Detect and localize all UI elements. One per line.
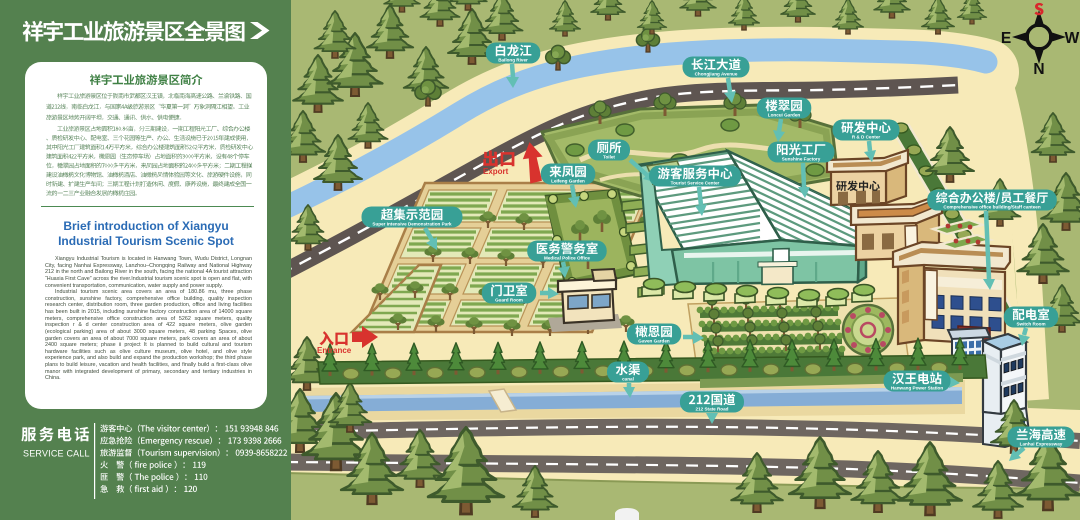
svg-text:canal: canal [622, 376, 634, 381]
svg-text:Lanhai Expressway: Lanhai Expressway [1020, 441, 1063, 446]
svg-text:Medical Police Office: Medical Police Office [544, 255, 590, 260]
svg-text:Guard Room: Guard Room [495, 297, 523, 302]
svg-text:R & D Center: R & D Center [852, 134, 881, 139]
svg-text:Hanwang Power Station: Hanwang Power Station [891, 385, 944, 390]
svg-text:Tourist Service Center: Tourist Service Center [671, 180, 720, 185]
svg-text:E: E [1001, 30, 1011, 47]
svg-text:N: N [1033, 61, 1044, 78]
svg-text:Switch Room: Switch Room [1016, 321, 1045, 326]
svg-text:Comprehensive office building/: Comprehensive office building/Staff cant… [943, 204, 1040, 209]
svg-text:Bailong River: Bailong River [498, 57, 528, 62]
svg-text:Entrance: Entrance [317, 346, 352, 355]
svg-text:Super Intensive Demonstration: Super Intensive Demonstration Park [372, 221, 452, 226]
svg-text:Sunshine Factory: Sunshine Factory [782, 156, 821, 161]
svg-text:W: W [1065, 30, 1080, 47]
svg-text:Loncui Garden: Loncui Garden [768, 112, 801, 117]
svg-text:Toilet: Toilet [603, 154, 615, 159]
svg-text:Gaven Garden: Gaven Garden [638, 338, 670, 343]
svg-text:Leifeng Garden: Leifeng Garden [551, 178, 585, 183]
svg-text:SERVICE CALL: SERVICE CALL [23, 449, 90, 459]
svg-text:Export: Export [483, 167, 509, 176]
svg-text:Chongjiang Avenue: Chongjiang Avenue [695, 71, 738, 76]
svg-text:212 State Road: 212 State Road [696, 406, 729, 411]
